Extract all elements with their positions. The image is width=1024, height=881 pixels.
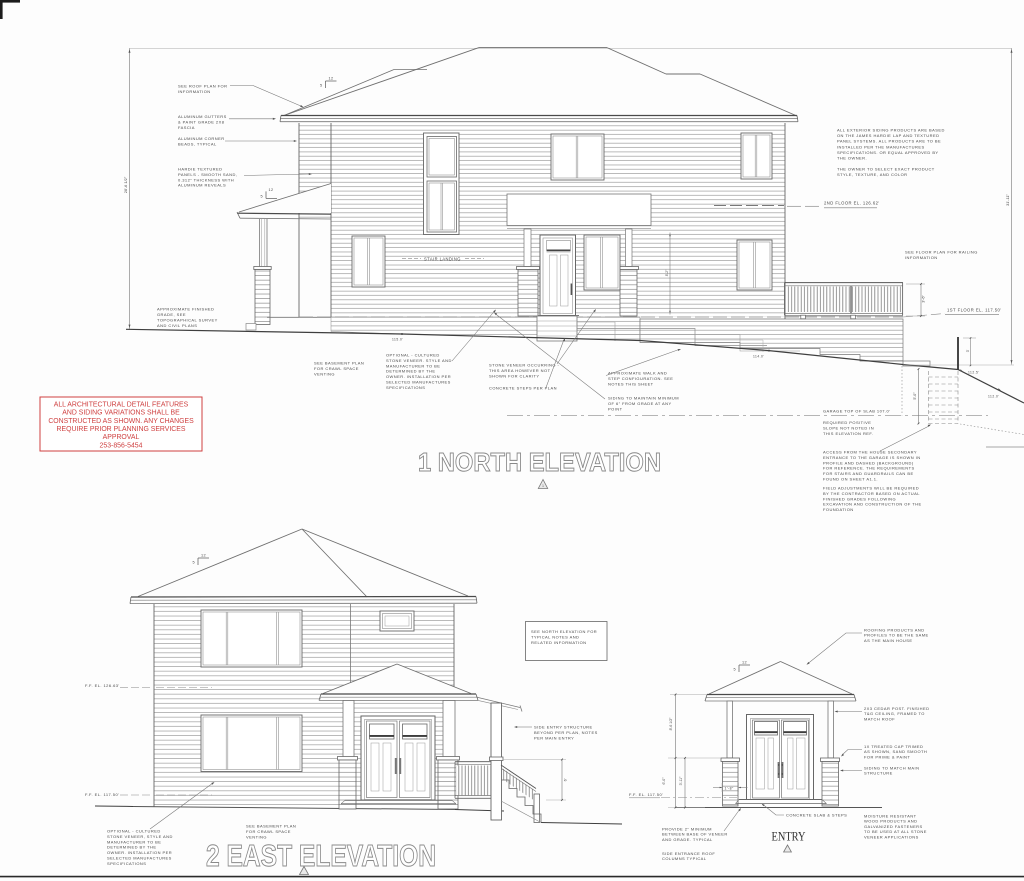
svg-text:12: 12 [329,77,334,81]
svg-text:28'-6 1/2": 28'-6 1/2" [123,176,128,193]
svg-text:GARAGE TOP OF SLAB 107.0': GARAGE TOP OF SLAB 107.0' [823,408,890,413]
svg-text:1 NORTH ELEVATION: 1 NORTH ELEVATION [418,447,661,477]
svg-text:1ST FLOOR EL. 117.50': 1ST FLOOR EL. 117.50' [947,308,1002,313]
svg-text:6': 6' [564,778,568,781]
svg-text:31'-11": 31'-11" [1005,193,1010,205]
svg-text:5'-0": 5'-0" [913,392,917,400]
svg-text:5: 5 [261,194,264,198]
svg-text:STAIR LANDING: STAIR LANDING [424,257,461,262]
svg-text:8'-6 1/2": 8'-6 1/2" [669,717,673,731]
svg-text:112.5': 112.5' [968,371,979,375]
svg-text:5: 5 [320,84,323,88]
svg-text:F.F. EL. 117.50': F.F. EL. 117.50' [629,792,663,797]
svg-text:3'-6": 3'-6" [922,295,926,303]
svg-text:2ND FLOOR EL. 126.62': 2ND FLOOR EL. 126.62' [824,201,880,206]
svg-text:12: 12 [201,554,206,558]
svg-text:F.F. EL. 117.50': F.F. EL. 117.50' [85,792,119,797]
svg-text:114.0': 114.0' [753,355,764,359]
svg-text:1'-8": 1'-8" [725,786,735,790]
svg-text:CONCRETE SLAB & STEPS: CONCRETE SLAB & STEPS [786,813,847,818]
svg-text:8'-2": 8'-2" [665,269,669,276]
svg-text:5: 5 [193,561,196,565]
svg-text:ENTRY: ENTRY [772,829,806,844]
svg-text:2 EAST ELEVATION: 2 EAST ELEVATION [206,838,436,873]
svg-text:5: 5 [734,668,737,672]
svg-text:3': 3' [966,349,970,352]
svg-text:REQUIRED POSITIVESLOPE NOT NOT: REQUIRED POSITIVESLOPE NOT NOTED INTHIS … [823,420,874,436]
svg-text:112.0': 112.0' [988,395,999,399]
svg-text:12: 12 [742,661,747,665]
svg-text:115.0': 115.0' [392,338,403,342]
svg-text:6'-0": 6'-0" [662,777,666,785]
svg-text:12: 12 [269,188,274,192]
svg-text:F.F. EL. 126.63': F.F. EL. 126.63' [85,683,120,688]
svg-text:3'-11": 3'-11" [679,776,683,785]
